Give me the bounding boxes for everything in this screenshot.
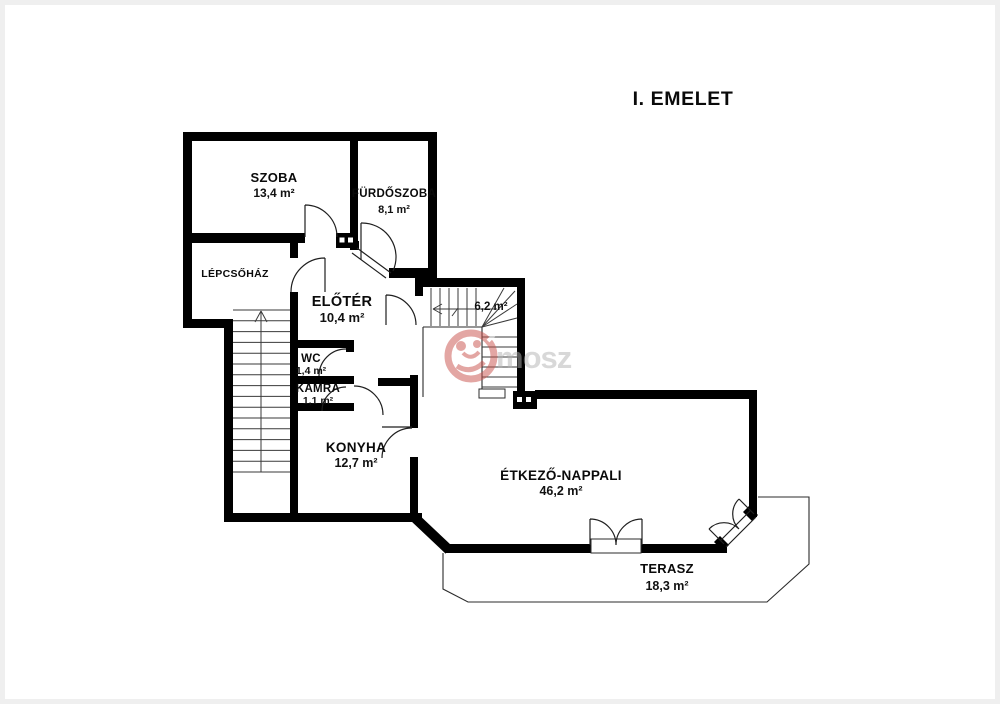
door-corner-terrace: [709, 499, 754, 544]
door-lepcsohaz: [291, 258, 325, 292]
svg-text:KONYHA: KONYHA: [326, 440, 386, 455]
stair-landing: [479, 389, 505, 398]
svg-text:ELŐTÉR: ELŐTÉR: [312, 292, 373, 310]
room-label-lepcsohaz: LÉPCSŐHÁZ: [201, 267, 269, 280]
svg-text:1,1 m²: 1,1 m²: [303, 395, 334, 407]
svg-text:1,4 m²: 1,4 m²: [296, 365, 327, 377]
svg-text:46,2 m²: 46,2 m²: [539, 484, 582, 498]
door-stairwell: [386, 295, 416, 325]
svg-text:ÉTKEZŐ-NAPPALI: ÉTKEZŐ-NAPPALI: [500, 468, 622, 483]
floor-title: I. EMELET: [633, 88, 734, 110]
floorplan-drawing: I. EMELET: [5, 5, 1000, 704]
svg-text:SZOBA: SZOBA: [251, 170, 298, 185]
chimney-symbol: [513, 391, 537, 409]
kitchen-diagonal-wall: [413, 516, 449, 550]
watermark: mosz: [448, 333, 572, 379]
svg-text:KAMRA: KAMRA: [296, 383, 340, 395]
svg-text:10,4 m²: 10,4 m²: [320, 310, 365, 325]
room-label-wc: WC1,4 m²: [296, 353, 327, 377]
room-label-stairwell: 6,2 m²: [474, 301, 507, 313]
miosz-logo-icon: [448, 333, 496, 379]
room-label-konyha: KONYHA12,7 m²: [326, 440, 386, 470]
door-szoba: [305, 205, 337, 237]
chimney-symbol: [336, 233, 357, 248]
room-label-nappali: ÉTKEZŐ-NAPPALI46,2 m²: [500, 468, 622, 498]
room-label-eloter: ELŐTÉR10,4 m²: [312, 292, 373, 325]
door-threshold-bathroom: [352, 248, 391, 278]
door-konyha-nappali: [382, 427, 412, 458]
svg-text:12,7 m²: 12,7 m²: [334, 456, 377, 470]
svg-text:18,3 m²: 18,3 m²: [645, 579, 688, 593]
watermark-text: mosz: [496, 340, 572, 375]
svg-text:6,2 m²: 6,2 m²: [474, 301, 507, 313]
room-label-terasz: TERASZ18,3 m²: [640, 561, 694, 593]
svg-text:13,4 m²: 13,4 m²: [253, 186, 294, 200]
svg-text:LÉPCSŐHÁZ: LÉPCSŐHÁZ: [201, 267, 269, 280]
room-label-furdoszoba: FÜRDŐSZOBA8,1 m²: [352, 187, 436, 216]
svg-text:TERASZ: TERASZ: [640, 561, 694, 576]
svg-text:WC: WC: [301, 353, 321, 365]
door-konyha: [354, 386, 383, 415]
floorplan-page: I. EMELET: [0, 0, 1000, 704]
room-label-szoba: SZOBA13,4 m²: [251, 170, 298, 200]
svg-text:FÜRDŐSZOBA: FÜRDŐSZOBA: [352, 187, 436, 200]
svg-text:8,1 m²: 8,1 m²: [378, 204, 410, 216]
